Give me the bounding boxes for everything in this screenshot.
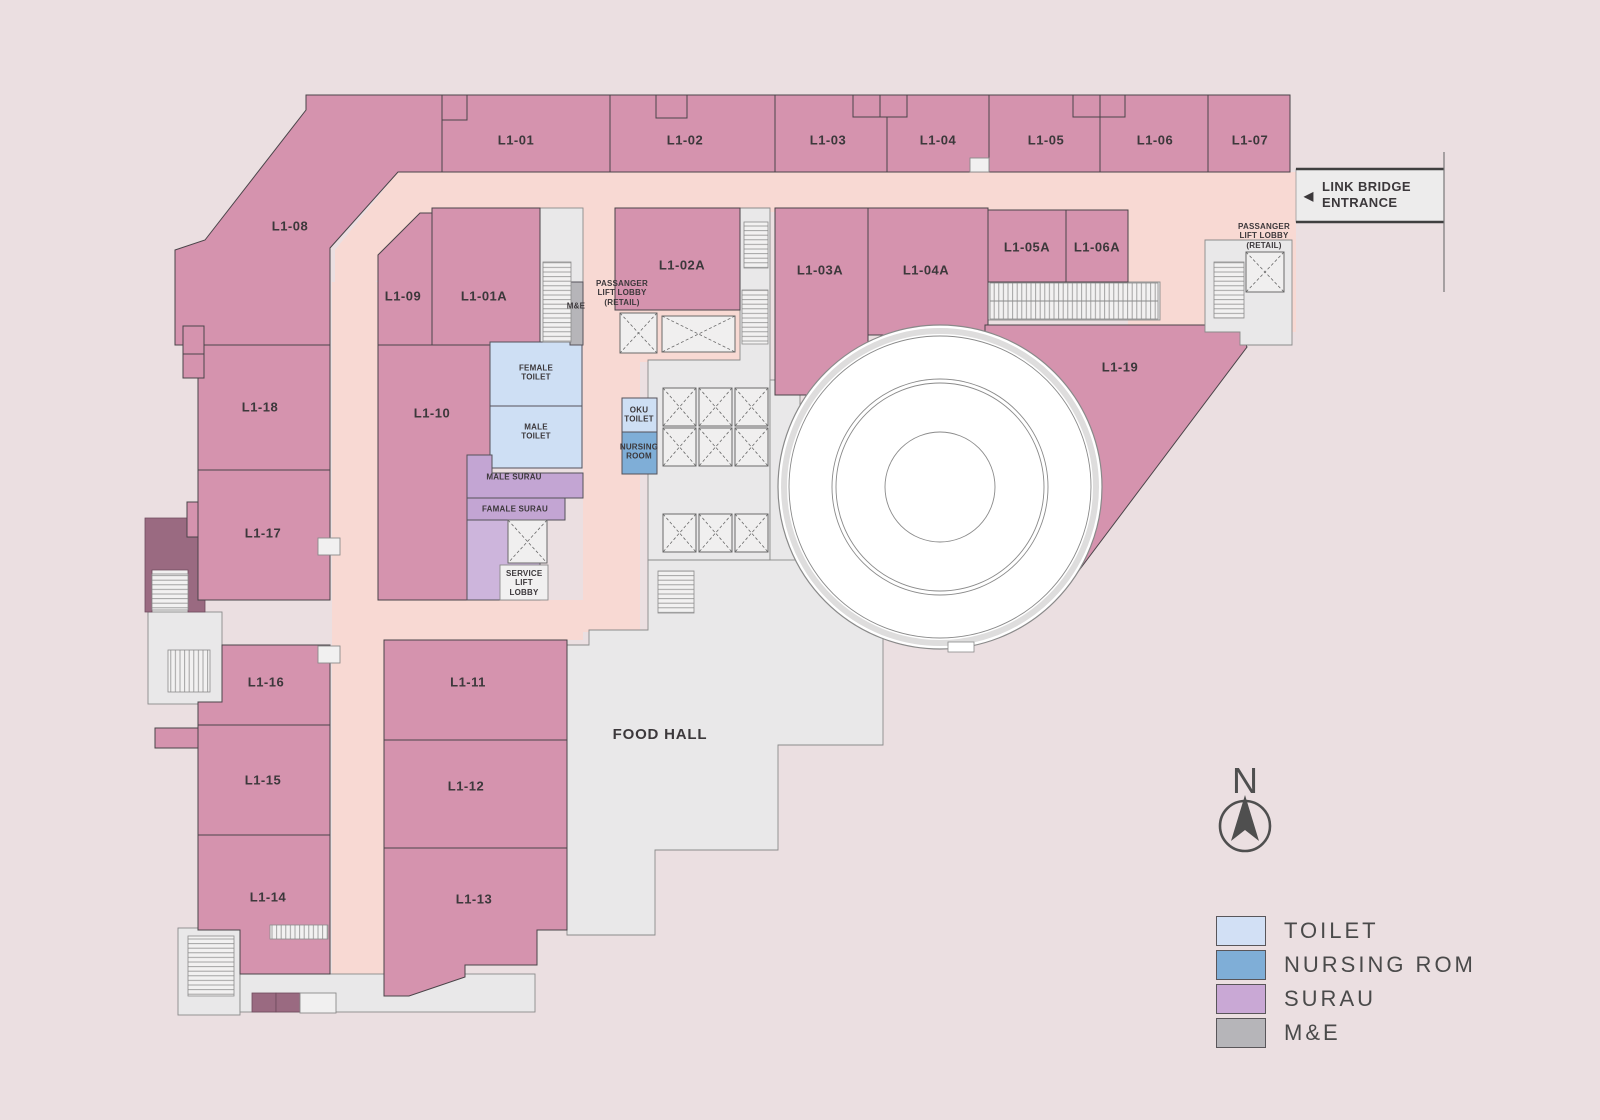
unit-label-l1-01a: L1-01A: [461, 288, 507, 303]
legend-label-me: M&E: [1284, 1020, 1341, 1046]
lift-bank-lower: [663, 514, 768, 552]
legend-swatch-toilet: [1216, 916, 1266, 946]
floor-plan-page: L1-01 L1-02 L1-03 L1-04 L1-05 L1-06 L1-0…: [0, 0, 1600, 1120]
unit-label-l1-08: L1-08: [272, 218, 308, 233]
passenger-lift-lobby-label-northeast: PASSANGER LIFT LOBBY (RETAIL): [1233, 222, 1295, 250]
unit-bump-4: [155, 728, 198, 748]
link-bridge-arrow-icon: ◀: [1304, 189, 1314, 204]
legend-label-toilet: TOILET: [1284, 918, 1379, 944]
unit-l1-11-area: [384, 640, 567, 740]
legend-item-toilet: TOILET: [1216, 916, 1379, 946]
unit-label-l1-04a: L1-04A: [903, 262, 949, 277]
stairs-core-top: [742, 290, 768, 344]
atrium-circle: [778, 325, 1102, 652]
male-surau-label: MALE SURAU: [486, 472, 541, 481]
unit-label-l1-13: L1-13: [456, 891, 492, 906]
unit-label-l1-19: L1-19: [1102, 359, 1138, 374]
link-bridge-entrance-label: LINK BRIDGE ENTRANCE: [1322, 179, 1426, 212]
notch-l1-17: [318, 538, 340, 555]
unit-label-l1-06: L1-06: [1137, 132, 1173, 147]
legend-swatch-nursing-room: [1216, 950, 1266, 980]
stairs-west-2: [168, 650, 210, 692]
unit-label-l1-11: L1-11: [450, 674, 486, 689]
legend-swatch-me: [1216, 1018, 1266, 1048]
unit-label-l1-16: L1-16: [248, 674, 284, 689]
notch-l1-05: [970, 158, 989, 172]
stairs-core-bottom: [658, 571, 694, 613]
food-hall-label: FOOD HALL: [613, 726, 708, 744]
legend-item-nursing-room: NURSING ROM: [1216, 950, 1476, 980]
unit-label-l1-14: L1-14: [250, 889, 286, 904]
unit-label-l1-03a: L1-03A: [797, 262, 843, 277]
service-box-south: [300, 993, 336, 1013]
unit-bump-1: [183, 326, 204, 354]
unit-l1-01a-area: [432, 208, 540, 345]
service-lift-lobby-label: SERVICE LIFT LOBBY: [506, 569, 542, 597]
unit-label-l1-04: L1-04: [920, 132, 956, 147]
me-area: [570, 282, 583, 345]
legend-item-surau: SURAU: [1216, 984, 1376, 1014]
notch-l1-16: [318, 646, 340, 663]
stairs-southwest: [188, 936, 234, 996]
unit-label-l1-07: L1-07: [1232, 132, 1268, 147]
unit-label-l1-05a: L1-05A: [1004, 239, 1050, 254]
accent-block-south-2: [276, 993, 300, 1012]
stairs-south-comb: [270, 925, 328, 939]
stairs-northeast: [1214, 262, 1244, 318]
legend-label-surau: SURAU: [1284, 986, 1376, 1012]
service-lift: [508, 520, 547, 563]
unit-label-l1-06a: L1-06A: [1074, 239, 1120, 254]
unit-bump-2: [183, 354, 204, 378]
famale-surau-label: FAMALE SURAU: [482, 504, 548, 513]
unit-label-l1-17: L1-17: [245, 525, 281, 540]
unit-label-l1-10: L1-10: [414, 405, 450, 420]
unit-label-l1-02: L1-02: [667, 132, 703, 147]
unit-label-l1-09: L1-09: [385, 288, 421, 303]
unit-l1-12-area: [384, 740, 567, 848]
me-label: M&E: [567, 301, 585, 310]
female-toilet-label: FEMALE TOILET: [514, 364, 558, 383]
north-label: N: [1232, 760, 1258, 802]
unit-label-l1-05: L1-05: [1028, 132, 1064, 147]
stairs-west-1: [152, 574, 188, 610]
unit-label-l1-02a: L1-02A: [659, 257, 705, 272]
unit-label-l1-03: L1-03: [810, 132, 846, 147]
unit-label-l1-15: L1-15: [245, 772, 281, 787]
passenger-lift-northeast: [1246, 252, 1284, 292]
passenger-lift-lobby-label-center: PASSANGER LIFT LOBBY (RETAIL): [591, 279, 653, 307]
accent-block-south-1: [252, 993, 276, 1012]
corridor-cross-band: [372, 600, 583, 640]
unit-label-l1-01: L1-01: [498, 132, 534, 147]
escalators: [990, 283, 1158, 319]
stairs-core-slot: [744, 222, 768, 268]
passenger-lifts-retail: [620, 313, 735, 353]
unit-label-l1-12: L1-12: [448, 778, 484, 793]
male-toilet-label: MALE TOILET: [516, 423, 556, 442]
legend-label-nursing-room: NURSING ROM: [1284, 952, 1476, 978]
legend-swatch-surau: [1216, 984, 1266, 1014]
legend-item-me: M&E: [1216, 1018, 1341, 1048]
nursing-room-label: NURSING ROOM: [616, 443, 662, 462]
oku-toilet-label: OKU TOILET: [621, 406, 657, 425]
unit-label-l1-18: L1-18: [242, 399, 278, 414]
